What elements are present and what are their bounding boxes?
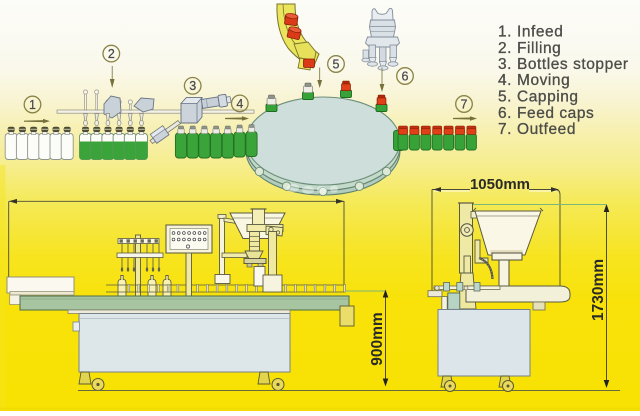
svg-text:5.: 5. [498, 89, 512, 106]
svg-text:7.: 7. [498, 121, 512, 138]
svg-text:Moving: Moving [517, 72, 570, 89]
svg-text:1: 1 [29, 98, 36, 112]
svg-text:Infeed: Infeed [517, 24, 563, 41]
svg-text:Bottles stopper: Bottles stopper [517, 56, 629, 73]
svg-text:900mm: 900mm [369, 312, 386, 365]
svg-text:3.: 3. [498, 56, 512, 73]
svg-text:1.: 1. [498, 24, 512, 41]
svg-text:7: 7 [461, 97, 468, 111]
svg-text:2.: 2. [498, 40, 512, 57]
svg-text:Capping: Capping [517, 89, 579, 106]
svg-text:2: 2 [108, 47, 115, 61]
svg-text:Outfeed: Outfeed [517, 121, 576, 138]
svg-text:4: 4 [236, 97, 243, 111]
svg-text:Feed caps: Feed caps [517, 105, 594, 122]
svg-text:1730mm: 1730mm [590, 259, 607, 321]
svg-text:5: 5 [333, 57, 340, 71]
svg-text:6.: 6. [498, 105, 512, 122]
svg-text:Filling: Filling [517, 40, 561, 57]
svg-text:6: 6 [402, 69, 409, 83]
svg-text:3: 3 [189, 79, 196, 93]
svg-text:1050mm: 1050mm [470, 176, 530, 193]
svg-text:4.: 4. [498, 72, 512, 89]
